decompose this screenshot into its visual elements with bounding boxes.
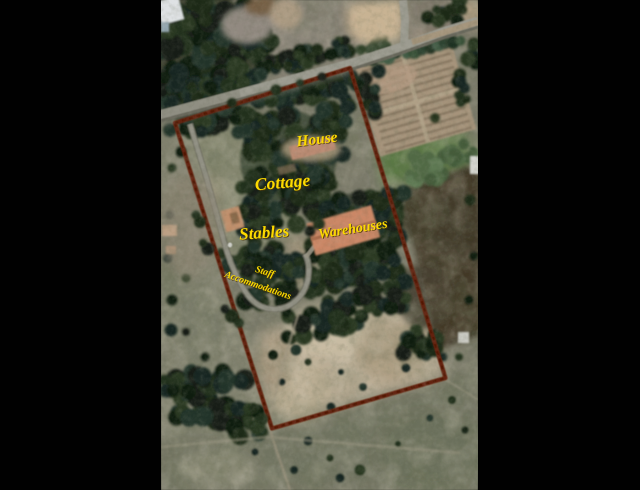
svg-text:Stables: Stables xyxy=(238,221,290,243)
